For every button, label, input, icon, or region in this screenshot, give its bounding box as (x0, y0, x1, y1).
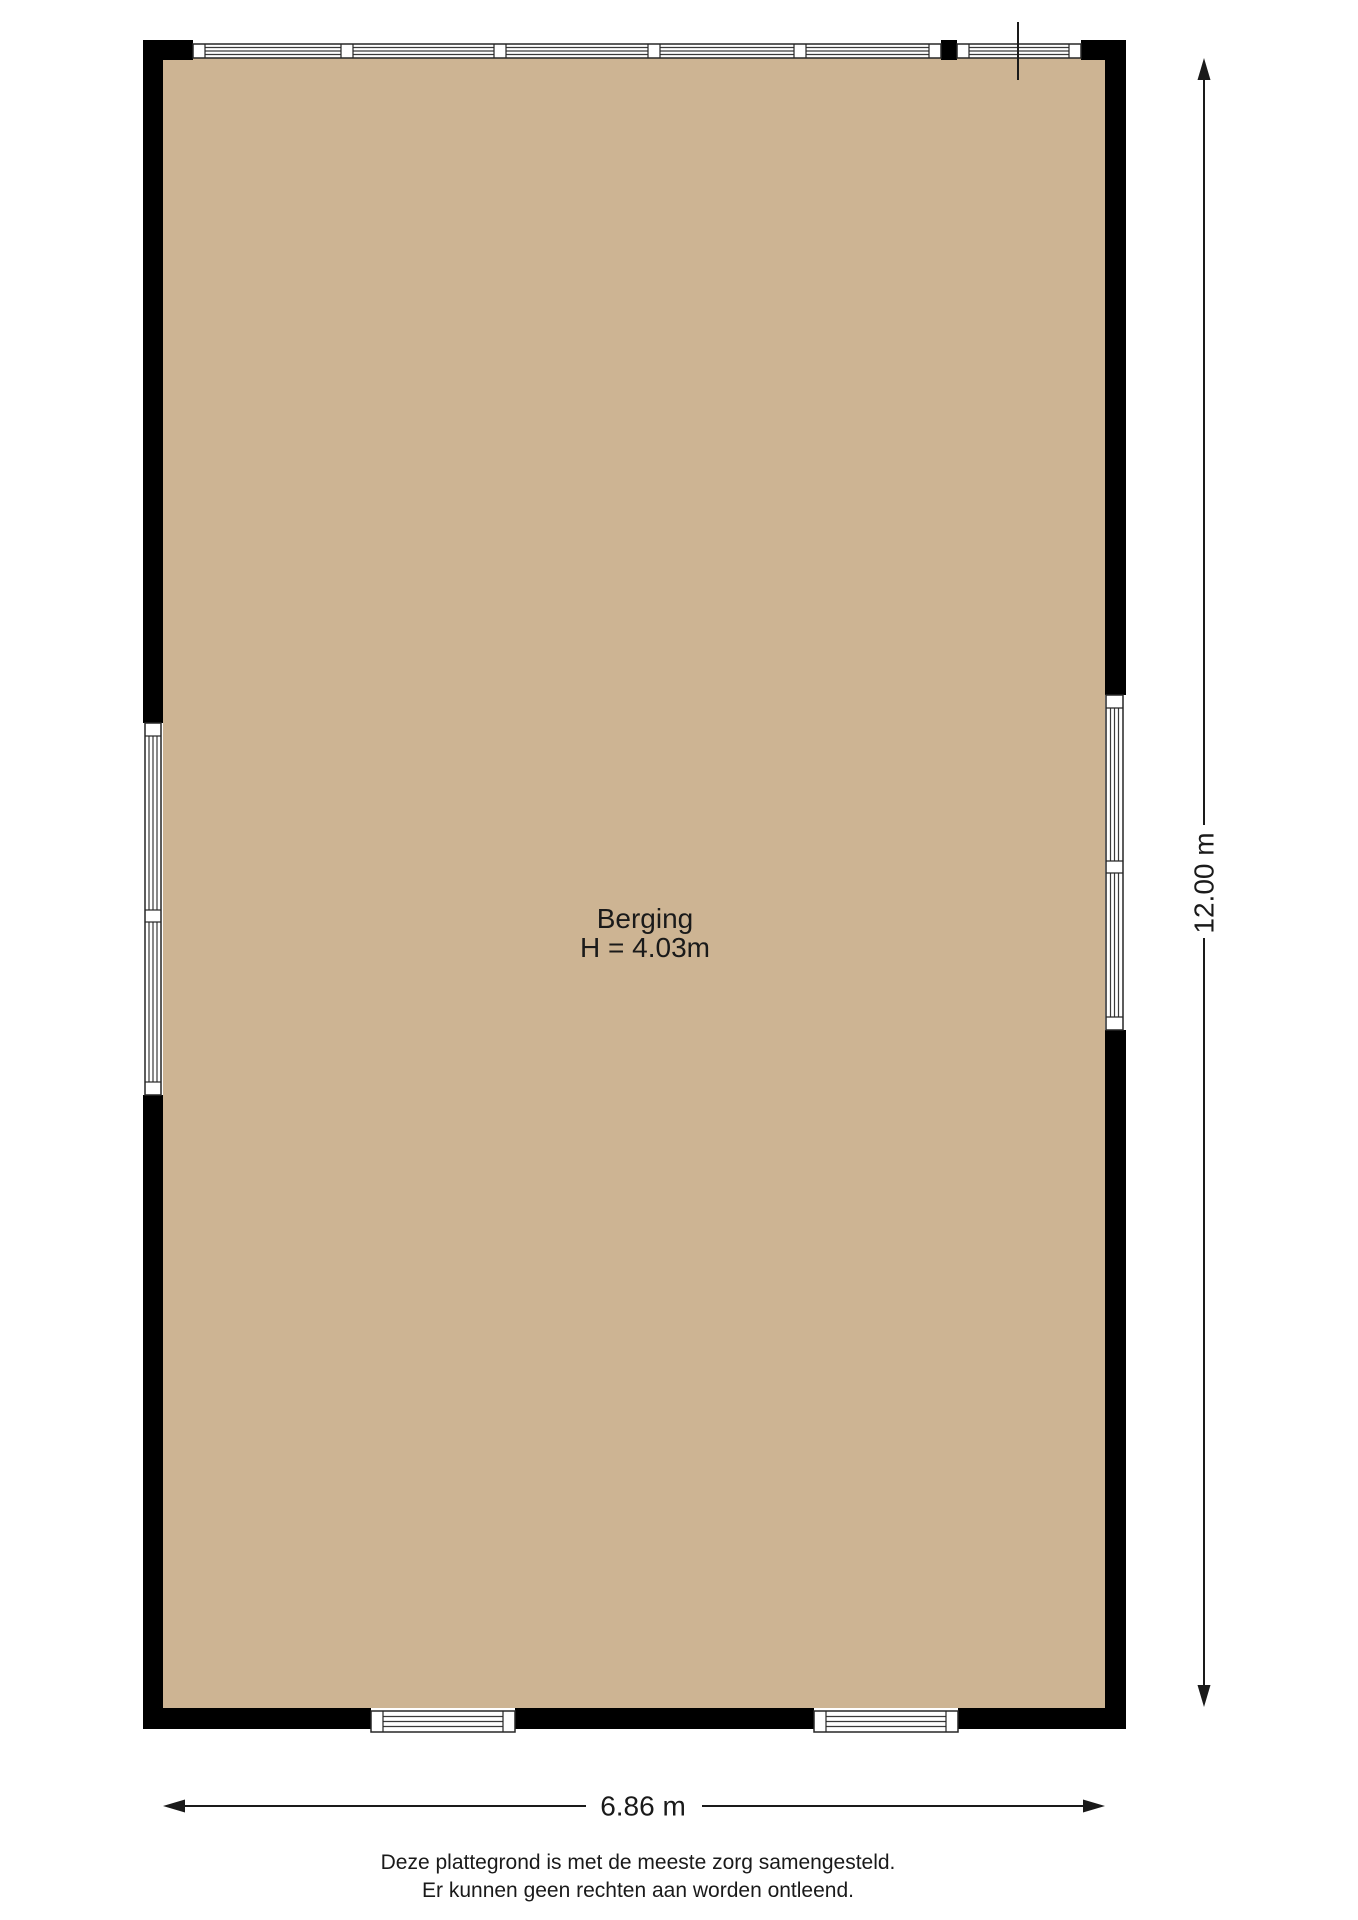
wall-bottom-left (143, 1708, 371, 1729)
room-ceiling-height-label: H = 4.03m (580, 932, 710, 963)
arrow-left-icon (163, 1800, 185, 1813)
window-top-band-a (193, 44, 941, 58)
window-left (145, 723, 161, 1095)
room-labels: Berging H = 4.03m (580, 903, 710, 963)
wall-bottom-mid (515, 1708, 814, 1729)
window-right (1106, 695, 1123, 1030)
wall-left-lower (143, 1095, 163, 1729)
disclaimer-line-2: Er kunnen geen rechten aan worden ontlee… (422, 1879, 854, 1902)
dimension-height: 12.00 m (1189, 58, 1220, 1707)
dimension-width: 6.86 m (163, 1791, 1105, 1822)
floorplan-drawing: 12.00 m 6.86 m Berging H = 4.03m Deze pl… (0, 0, 1358, 1920)
disclaimer-line-1: Deze plattegrond is met de meeste zorg s… (381, 1851, 896, 1874)
window-bottom-left (371, 1711, 515, 1732)
height-dimension-label: 12.00 m (1189, 832, 1220, 933)
disclaimer: Deze plattegrond is met de meeste zorg s… (381, 1851, 896, 1902)
wall-left-upper (143, 40, 163, 723)
room-floor (163, 58, 1105, 1708)
wall-pier-top-mid (941, 40, 957, 60)
room-name-label: Berging (597, 903, 694, 934)
arrow-down-icon (1198, 1685, 1211, 1707)
arrow-right-icon (1083, 1800, 1105, 1813)
arrow-up-icon (1198, 58, 1211, 80)
wall-bottom-right (958, 1708, 1126, 1729)
window-bottom-right (814, 1711, 958, 1732)
width-dimension-label: 6.86 m (600, 1791, 686, 1822)
wall-right-lower (1105, 1030, 1126, 1729)
floorplan-page: 12.00 m 6.86 m Berging H = 4.03m Deze pl… (0, 0, 1358, 1920)
wall-right-upper (1105, 40, 1126, 695)
